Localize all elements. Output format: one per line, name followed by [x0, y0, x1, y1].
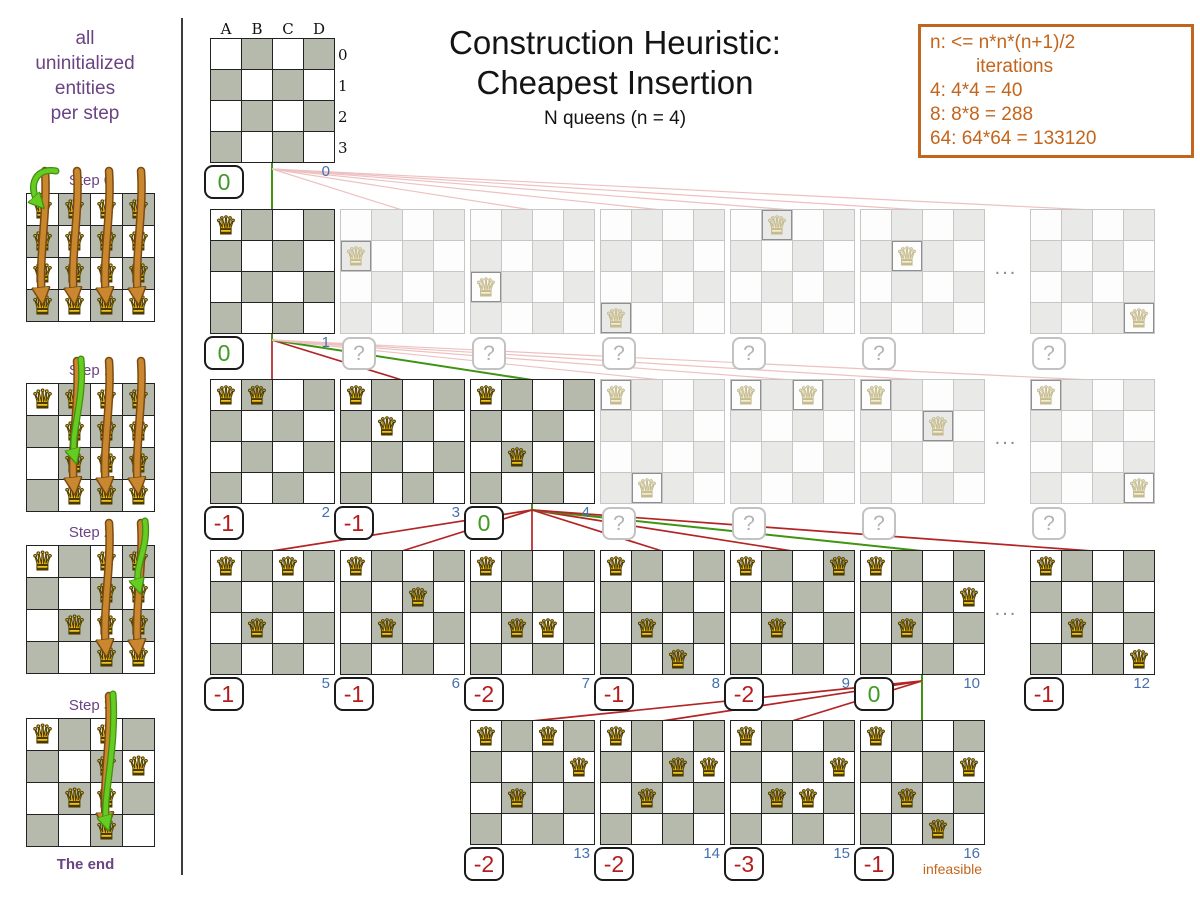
ellipsis: ... [986, 598, 1026, 621]
board-cell [502, 644, 532, 674]
board-cell [663, 272, 693, 302]
board-cell: ♛ [59, 448, 90, 479]
board-cell [471, 814, 501, 844]
queen-icon: ♛ [127, 645, 150, 671]
board-cell [372, 241, 402, 271]
board-cell [304, 551, 334, 581]
board-cell: ♛ [91, 290, 122, 321]
board-cell [564, 241, 594, 271]
board-cell [273, 272, 303, 302]
board-cell: ♛ [123, 751, 154, 782]
board-cell [793, 582, 823, 612]
tree-chessboard: ♛ [470, 209, 595, 334]
board-cell [954, 721, 984, 751]
score-badge: 0 [204, 165, 244, 199]
queen-icon: ♛ [63, 419, 86, 445]
board-cell [403, 473, 433, 503]
board-cell [564, 442, 594, 472]
board-cell [892, 210, 922, 240]
board-cell: ♛ [27, 290, 58, 321]
board-cell [923, 752, 953, 782]
board-cell [341, 613, 371, 643]
board-cell [533, 411, 563, 441]
board-cell: ♛ [892, 613, 922, 643]
board-cell [1093, 473, 1123, 503]
board-cell [564, 814, 594, 844]
tree-chessboard: ♛♛♛ [1030, 550, 1155, 675]
board-cell: ♛ [341, 241, 371, 271]
board-cell [1031, 442, 1061, 472]
iteration-number: 8 [680, 675, 720, 692]
board-cell [601, 210, 631, 240]
board-cell [242, 101, 272, 131]
board-cell [27, 480, 58, 511]
board-cell [211, 39, 241, 69]
queen-icon: ♛ [537, 616, 559, 641]
diagram-canvas: all uninitialized entities per step Cons… [0, 0, 1200, 900]
board-cell: ♛ [471, 721, 501, 751]
page-subtitle: N queens (n = 4) [405, 108, 825, 130]
board-cell [632, 814, 662, 844]
board-cell: ♛ [694, 752, 724, 782]
board-cell [1062, 644, 1092, 674]
board-cell: ♛ [824, 551, 854, 581]
board-cell [1093, 442, 1123, 472]
queen-icon: ♛ [475, 383, 497, 408]
ellipsis: ... [986, 257, 1026, 280]
board-cell [954, 380, 984, 410]
board-cell [502, 241, 532, 271]
queen-icon: ♛ [735, 383, 757, 408]
board-cell: ♛ [91, 416, 122, 447]
board-cell: ♛ [861, 380, 891, 410]
board-cell [471, 783, 501, 813]
board-cell [601, 473, 631, 503]
board-cell [564, 613, 594, 643]
board-cell [242, 551, 272, 581]
score-badge: -3 [724, 847, 764, 881]
board-cell [824, 303, 854, 333]
tree-chessboard: ♛♛♛ [470, 550, 595, 675]
board-cell [861, 582, 891, 612]
board-cell [923, 551, 953, 581]
queen-icon: ♛ [475, 554, 497, 579]
board-cell [434, 551, 464, 581]
board-cell [1124, 241, 1154, 271]
board-cell: ♛ [27, 719, 58, 750]
board-cell: ♛ [123, 642, 154, 673]
board-cell [762, 411, 792, 441]
board-cell [632, 644, 662, 674]
board-cell [372, 551, 402, 581]
board-cell: ♛ [1124, 644, 1154, 674]
board-cell [663, 442, 693, 472]
info-line: n: <= n*n*(n+1)/2 [930, 31, 1182, 55]
end-label: The end [13, 856, 158, 873]
board-cell [824, 814, 854, 844]
board-cell [954, 814, 984, 844]
board-cell [1093, 380, 1123, 410]
queen-icon: ♛ [31, 261, 54, 287]
board-cell [601, 272, 631, 302]
board-cell [403, 241, 433, 271]
board-cell: ♛ [471, 380, 501, 410]
question-badge: ? [862, 337, 896, 370]
board-cell [502, 814, 532, 844]
board-cell [372, 380, 402, 410]
board-cell: ♛ [892, 783, 922, 813]
board-cell [341, 210, 371, 240]
board-cell [273, 582, 303, 612]
queen-icon: ♛ [865, 554, 887, 579]
board-cell [892, 380, 922, 410]
board-cell [861, 752, 891, 782]
board-cell [27, 815, 58, 846]
board-cell: ♛ [663, 752, 693, 782]
board-cell: ♛ [564, 752, 594, 782]
queen-icon: ♛ [95, 613, 118, 639]
board-cell [211, 132, 241, 162]
tree-chessboard: ♛ [1030, 209, 1155, 334]
board-cell [861, 241, 891, 271]
board-cell [471, 582, 501, 612]
board-cell [304, 241, 334, 271]
board-cell: ♛ [923, 411, 953, 441]
queen-icon: ♛ [1128, 647, 1150, 672]
board-cell: ♛ [1031, 551, 1061, 581]
queen-icon: ♛ [95, 261, 118, 287]
board-cell [403, 411, 433, 441]
tree-chessboard [210, 38, 335, 163]
board-cell [892, 442, 922, 472]
board-cell: ♛ [91, 258, 122, 289]
board-cell [471, 613, 501, 643]
caption-line: all [5, 26, 165, 51]
board-cell [471, 210, 501, 240]
board-cell [824, 783, 854, 813]
board-cell: ♛ [91, 384, 122, 415]
board-cell [273, 101, 303, 131]
board-cell [793, 272, 823, 302]
board-cell [632, 303, 662, 333]
question-badge: ? [732, 507, 766, 540]
score-badge: -1 [204, 506, 244, 540]
board-cell: ♛ [242, 380, 272, 410]
board-cell [954, 303, 984, 333]
board-cell [59, 578, 90, 609]
board-cell [242, 303, 272, 333]
score-badge: 0 [854, 677, 894, 711]
board-cell [533, 473, 563, 503]
board-cell [341, 411, 371, 441]
board-cell [533, 783, 563, 813]
board-cell: ♛ [59, 610, 90, 641]
board-cell [341, 644, 371, 674]
board-cell: ♛ [601, 551, 631, 581]
queen-icon: ♛ [407, 585, 429, 610]
board-cell [471, 473, 501, 503]
iteration-number: 1 [290, 334, 330, 351]
board-cell [242, 272, 272, 302]
board-cell [1093, 644, 1123, 674]
question-badge: ? [1032, 337, 1066, 370]
iteration-number: 7 [550, 675, 590, 692]
board-cell [762, 380, 792, 410]
board-cell [273, 303, 303, 333]
queen-icon: ♛ [667, 647, 689, 672]
board-cell [663, 721, 693, 751]
board-cell [564, 644, 594, 674]
board-cell: ♛ [211, 210, 241, 240]
score-badge: 0 [204, 336, 244, 370]
board-cell [731, 752, 761, 782]
board-cell [824, 272, 854, 302]
board-cell [341, 442, 371, 472]
board-cell: ♛ [123, 226, 154, 257]
board-cell [923, 644, 953, 674]
vertical-divider [181, 18, 183, 875]
board-cell: ♛ [632, 473, 662, 503]
board-cell [211, 101, 241, 131]
queen-icon: ♛ [95, 549, 118, 575]
queen-icon: ♛ [927, 414, 949, 439]
board-cell [372, 644, 402, 674]
board-cell [273, 473, 303, 503]
mini-chessboard: ♛♛♛♛♛♛♛♛♛♛ [26, 545, 155, 674]
queen-icon: ♛ [797, 786, 819, 811]
board-cell [1062, 551, 1092, 581]
board-cell [434, 613, 464, 643]
board-cell: ♛ [663, 644, 693, 674]
board-cell [564, 551, 594, 581]
board-cell [601, 411, 631, 441]
board-cell [502, 303, 532, 333]
board-cell: ♛ [403, 582, 433, 612]
board-cell [533, 210, 563, 240]
board-cell [211, 473, 241, 503]
queen-icon: ♛ [345, 383, 367, 408]
board-cell [304, 380, 334, 410]
score-badge: -2 [464, 677, 504, 711]
queen-icon: ♛ [475, 275, 497, 300]
queen-icon: ♛ [376, 414, 398, 439]
board-cell [304, 644, 334, 674]
board-cell [502, 582, 532, 612]
caption-line: per step [5, 101, 165, 126]
board-cell [892, 272, 922, 302]
score-badge: -1 [594, 677, 634, 711]
board-cell: ♛ [91, 194, 122, 225]
board-cell [372, 442, 402, 472]
board-cell [471, 442, 501, 472]
board-cell [892, 582, 922, 612]
board-cell [304, 39, 334, 69]
board-cell [663, 551, 693, 581]
board-cell: ♛ [954, 752, 984, 782]
board-cell [892, 303, 922, 333]
board-cell [434, 644, 464, 674]
queen-icon: ♛ [63, 387, 86, 413]
queen-icon: ♛ [896, 616, 918, 641]
board-cell [372, 303, 402, 333]
connector-line [272, 169, 662, 210]
board-cell [533, 442, 563, 472]
ellipsis: ... [986, 427, 1026, 450]
board-cell [632, 210, 662, 240]
board-cell [471, 752, 501, 782]
queen-icon: ♛ [345, 554, 367, 579]
board-cell [793, 613, 823, 643]
queen-icon: ♛ [506, 616, 528, 641]
board-cell [824, 210, 854, 240]
board-cell [923, 380, 953, 410]
queen-icon: ♛ [605, 383, 627, 408]
board-cell [273, 380, 303, 410]
queen-icon: ♛ [735, 724, 757, 749]
iteration-number: 12 [1110, 675, 1150, 692]
board-cell: ♛ [954, 582, 984, 612]
board-cell [564, 411, 594, 441]
board-cell: ♛ [632, 783, 662, 813]
board-cell [632, 752, 662, 782]
step-label: Step 1 [26, 362, 155, 379]
queen-icon: ♛ [95, 451, 118, 477]
board-cell: ♛ [1124, 303, 1154, 333]
board-cell [1031, 644, 1061, 674]
board-cell [533, 272, 563, 302]
queen-icon: ♛ [95, 293, 118, 319]
queen-icon: ♛ [766, 213, 788, 238]
board-cell: ♛ [1062, 613, 1092, 643]
mini-chessboard: ♛♛♛♛♛♛♛♛♛♛♛♛♛♛♛♛ [26, 193, 155, 322]
board-cell [1062, 303, 1092, 333]
column-label: A [211, 20, 241, 38]
board-cell: ♛ [123, 578, 154, 609]
question-badge: ? [1032, 507, 1066, 540]
board-cell: ♛ [59, 384, 90, 415]
board-cell [632, 582, 662, 612]
tree-chessboard: ♛♛♛♛ [600, 720, 725, 845]
board-cell: ♛ [27, 384, 58, 415]
page-title-line1: Construction Heuristic: [405, 24, 825, 62]
board-cell [273, 70, 303, 100]
board-cell: ♛ [123, 290, 154, 321]
board-cell: ♛ [91, 578, 122, 609]
board-cell: ♛ [533, 613, 563, 643]
board-cell [954, 551, 984, 581]
board-cell [793, 241, 823, 271]
tree-chessboard: ♛♛♛ [600, 550, 725, 675]
queen-icon: ♛ [127, 483, 150, 509]
board-cell [304, 303, 334, 333]
iteration-number: 5 [290, 675, 330, 692]
iteration-number: 4 [550, 504, 590, 521]
board-cell [502, 721, 532, 751]
board-cell [1124, 582, 1154, 612]
board-cell [502, 272, 532, 302]
board-cell [694, 442, 724, 472]
board-cell [1124, 380, 1154, 410]
board-cell: ♛ [59, 226, 90, 257]
board-cell [824, 721, 854, 751]
board-cell: ♛ [91, 719, 122, 750]
board-cell [793, 210, 823, 240]
step-label: Step 3 [26, 697, 155, 714]
board-cell: ♛ [502, 783, 532, 813]
iterations-info-box: n: <= n*n*(n+1)/2 iterations 4: 4*4 = 40… [918, 24, 1194, 158]
board-cell: ♛ [762, 210, 792, 240]
board-cell [471, 411, 501, 441]
board-cell [27, 751, 58, 782]
board-cell [824, 613, 854, 643]
queen-icon: ♛ [735, 554, 757, 579]
board-cell [923, 783, 953, 813]
board-cell [372, 272, 402, 302]
board-cell [694, 303, 724, 333]
queen-icon: ♛ [127, 229, 150, 255]
board-cell [1093, 551, 1123, 581]
board-cell [533, 582, 563, 612]
board-cell [27, 416, 58, 447]
queen-icon: ♛ [127, 261, 150, 287]
board-cell: ♛ [27, 258, 58, 289]
board-cell: ♛ [91, 448, 122, 479]
board-cell: ♛ [27, 546, 58, 577]
board-cell [694, 272, 724, 302]
board-cell [564, 783, 594, 813]
board-cell [601, 582, 631, 612]
score-badge: -1 [334, 677, 374, 711]
board-cell [954, 210, 984, 240]
queen-icon: ♛ [345, 244, 367, 269]
board-cell [861, 411, 891, 441]
board-cell: ♛ [372, 613, 402, 643]
queen-icon: ♛ [896, 786, 918, 811]
board-cell [694, 721, 724, 751]
board-cell [663, 303, 693, 333]
board-cell [211, 411, 241, 441]
score-badge: -1 [334, 506, 374, 540]
board-cell [273, 210, 303, 240]
board-cell [242, 582, 272, 612]
board-cell [601, 241, 631, 271]
question-badge: ? [342, 337, 376, 370]
queen-icon: ♛ [127, 581, 150, 607]
board-cell [273, 39, 303, 69]
board-cell [1093, 613, 1123, 643]
board-cell [824, 582, 854, 612]
board-cell [471, 303, 501, 333]
queen-icon: ♛ [127, 613, 150, 639]
board-cell [793, 752, 823, 782]
score-badge: -2 [594, 847, 634, 881]
queen-icon: ♛ [215, 554, 237, 579]
board-cell [564, 582, 594, 612]
queen-icon: ♛ [63, 786, 86, 812]
board-cell [824, 644, 854, 674]
board-cell [123, 783, 154, 814]
board-cell [533, 752, 563, 782]
board-cell [694, 783, 724, 813]
board-cell [211, 644, 241, 674]
board-cell [1062, 210, 1092, 240]
board-cell [632, 721, 662, 751]
queen-icon: ♛ [31, 293, 54, 319]
queen-icon: ♛ [667, 755, 689, 780]
queen-icon: ♛ [698, 755, 720, 780]
board-cell [632, 380, 662, 410]
board-cell [341, 473, 371, 503]
